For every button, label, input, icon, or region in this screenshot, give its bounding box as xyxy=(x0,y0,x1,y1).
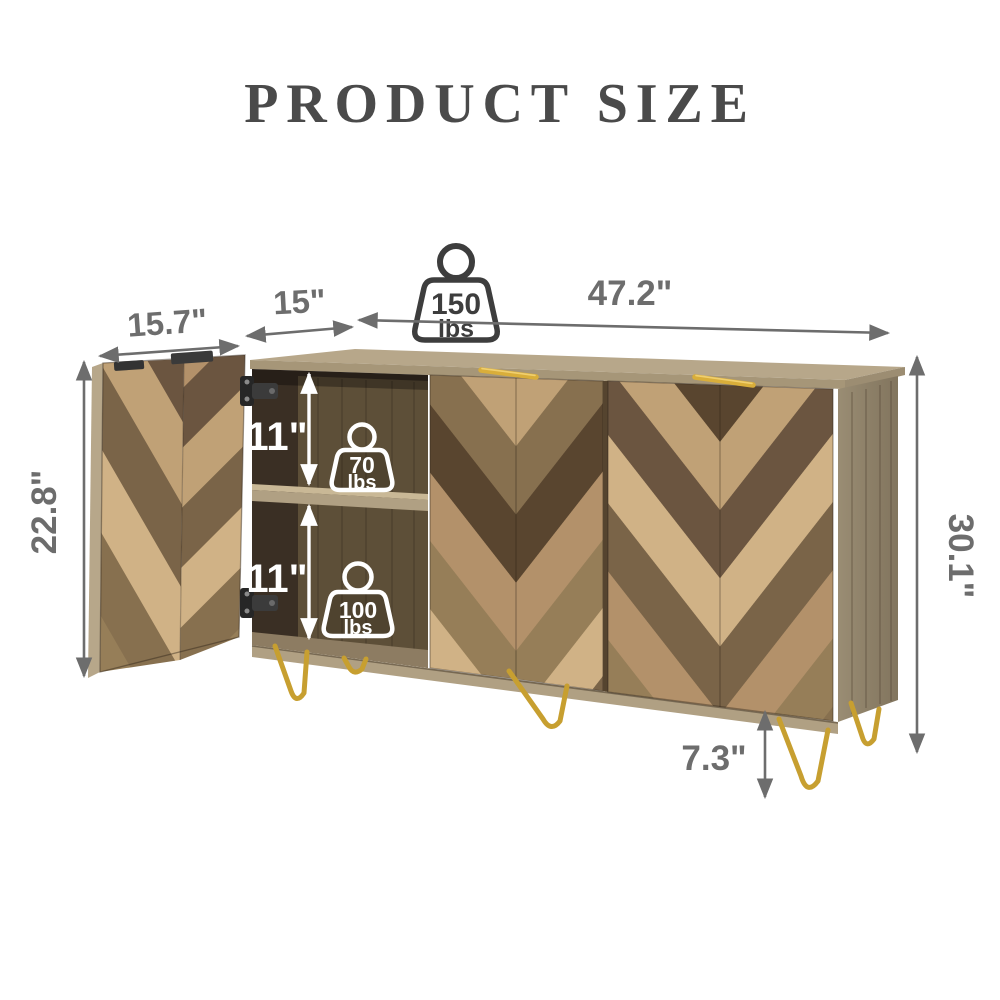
dim-lower-shelf-label: 11" xyxy=(246,557,307,601)
dim-total-height-label: 30.1" xyxy=(941,514,980,599)
cabinet-side-panel xyxy=(838,376,898,722)
open-door xyxy=(88,351,245,678)
cabinet-diagram: 150 lbs 70 lbs 100 lbs 15.7" 15 xyxy=(0,0,1000,1000)
dim-depth: 15" xyxy=(247,282,352,336)
dim-leg-height: 7.3" xyxy=(681,712,765,797)
door-stile xyxy=(603,381,608,692)
middle-door xyxy=(430,369,603,691)
dim-open-door-width-label: 15.7" xyxy=(126,301,208,343)
top-capacity: 150 lbs xyxy=(415,246,498,343)
right-door xyxy=(608,376,833,721)
dim-total-width-label: 47.2" xyxy=(588,274,673,313)
dim-door-height-label: 22.8" xyxy=(25,470,64,555)
bottom-capacity-unit: lbs xyxy=(344,617,373,639)
product-size-diagram: PRODUCT SIZE xyxy=(0,0,1000,1000)
dim-open-door-width: 15.7" xyxy=(100,301,238,356)
dim-depth-label: 15" xyxy=(272,282,326,322)
dim-total-height: 30.1" xyxy=(917,357,980,752)
dim-door-height: 22.8" xyxy=(25,362,84,676)
middle-capacity-unit: lbs xyxy=(348,472,377,494)
top-capacity-unit: lbs xyxy=(438,315,474,343)
dim-upper-shelf-label: 11" xyxy=(246,415,307,459)
dim-leg-height-label: 7.3" xyxy=(681,739,746,778)
